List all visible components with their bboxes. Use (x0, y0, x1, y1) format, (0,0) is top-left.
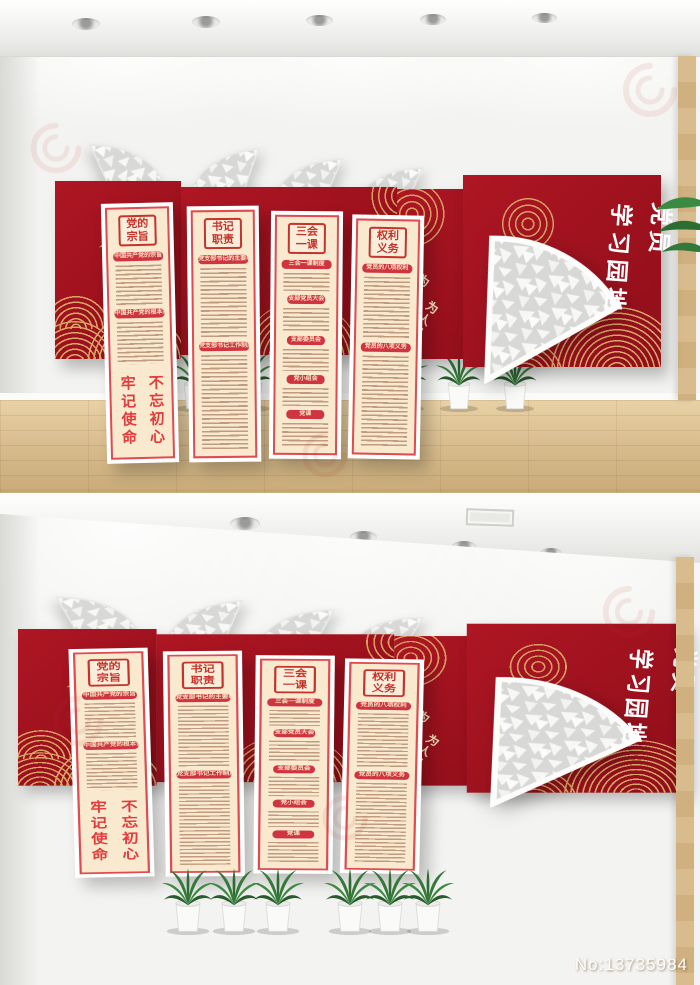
body-text-lines (282, 388, 328, 406)
section-title-bar: 党支部书记的主要职责 (198, 255, 248, 265)
section-title-bar: 支部党员大会 (287, 295, 326, 304)
watermark-icon (28, 120, 84, 176)
section-title-bar: 党员的八项权利 (362, 264, 412, 274)
scene-top-ceiling (0, 0, 700, 57)
section-title-bar: 党课 (286, 410, 325, 419)
ceiling-light (192, 16, 220, 28)
section-title-bar: 党支部书记工作制度 (176, 771, 231, 779)
seal-text: 书记 (184, 664, 222, 675)
body-text-lines (178, 706, 229, 768)
watermark-icon (320, 793, 370, 843)
body-text-lines (201, 355, 248, 449)
seal-text: 职责 (206, 233, 240, 246)
panel-seal: 党的 宗旨 (87, 659, 130, 687)
section-title-bar: 中国共产党的根本宗旨 (114, 309, 164, 319)
seal-text: 三会 (276, 668, 314, 679)
seal-text: 宗旨 (121, 230, 155, 243)
section-title-bar: 党支部书记工作制度 (199, 342, 249, 352)
scene-top-wall: 为人民谋幸福 为民族谋复兴 党员 学习园地 (0, 56, 700, 400)
body-text-lines (363, 277, 410, 340)
panel-seal: 党的 宗旨 (118, 215, 157, 247)
body-text-lines (86, 753, 138, 791)
wood-wall-strip (676, 557, 694, 985)
culture-panel-4: 权利 义务 党员的八项权利 党员的八项义务 (348, 214, 425, 459)
section-title-bar: 三会一课制度 (267, 699, 322, 707)
body-text-lines (283, 349, 329, 371)
panel-seal: 书记 职责 (204, 218, 242, 250)
wall-title-line: 学习园地 (599, 203, 641, 317)
main-slogan: 不忘初心 牢记使命 (84, 791, 143, 868)
side-plant-leaves (654, 180, 700, 270)
potted-plant (248, 861, 308, 935)
watermark-icon (620, 60, 680, 120)
section-title-bar: 支部委员会 (273, 765, 315, 773)
body-text-lines (283, 308, 329, 332)
body-text-lines (283, 273, 329, 291)
ceiling-light (306, 15, 333, 26)
seal-text: 一课 (290, 238, 324, 251)
seal-text: 党的 (90, 661, 128, 673)
potted-plant (398, 861, 458, 935)
panel-seal: 三会 一课 (274, 666, 316, 694)
main-slogan-column: 不忘初心 (145, 375, 168, 447)
stock-image-number: No:13735984 (575, 955, 688, 975)
seal-text: 义务 (365, 683, 403, 695)
ceiling-light (532, 13, 557, 23)
main-slogan: 不忘初心 牢记使命 (115, 366, 169, 453)
body-text-lines (361, 356, 409, 447)
ceiling-light (230, 517, 260, 530)
culture-panel-2: 书记 职责 党支部书记的主要职责 党支部书记工作制度 (163, 651, 245, 877)
body-text-lines (268, 842, 319, 862)
watermark-icon (300, 430, 350, 480)
seal-text: 权利 (371, 230, 405, 243)
big-lattice-fan-icon (446, 647, 646, 809)
watermark-icon (50, 693, 106, 749)
seal-text: 宗旨 (90, 672, 128, 684)
ceiling-vent (466, 508, 515, 527)
seal-text: 书记 (206, 221, 240, 234)
ceiling-light (72, 18, 100, 30)
main-slogan-column: 牢记使命 (117, 375, 140, 447)
culture-panel-2: 书记 职责 党支部书记的主要职责 党支部书记工作制度 (187, 206, 262, 463)
section-title-bar: 党小组会 (286, 375, 325, 384)
section-title-bar: 党支部书记的主要职责 (175, 694, 230, 702)
section-title-bar: 三会一课制度 (282, 260, 332, 269)
main-slogan-column: 不忘初心 (116, 799, 141, 863)
section-title-bar: 党课 (272, 831, 314, 839)
seal-text: 职责 (184, 675, 222, 686)
body-text-lines (115, 265, 162, 306)
scene-top-view: 为人民谋幸福 为民族谋复兴 党员 学习园地 (0, 0, 700, 493)
section-title-bar: 支部党员大会 (273, 729, 315, 737)
body-text-lines (357, 713, 409, 768)
panel-seal: 三会 一课 (288, 223, 326, 255)
panel-seal: 权利 义务 (363, 669, 405, 697)
wall-corner-shade (0, 56, 40, 400)
big-lattice-fan-icon (444, 202, 626, 386)
wall-title-line: 学习园地 (616, 648, 662, 748)
seal-text: 三会 (290, 226, 324, 239)
section-title-bar: 党小组会 (272, 800, 314, 808)
watermark-icon (600, 583, 658, 641)
panel-seal: 权利 义务 (369, 227, 408, 259)
body-text-lines (269, 710, 320, 726)
seal-text: 党的 (120, 218, 154, 231)
culture-panel-1: 党的 宗旨 中国共产党的宗旨 中国共产党的根本宗旨 不忘初心 牢记使命 (101, 202, 179, 464)
seal-text: 权利 (365, 672, 403, 684)
section-title-bar: 党员的八项权利 (356, 702, 411, 711)
body-text-lines (117, 322, 164, 365)
body-text-lines (268, 811, 319, 827)
body-text-lines (200, 268, 247, 338)
ceiling-light (420, 14, 446, 25)
section-title-bar: 党员的八项义务 (361, 343, 411, 353)
section-title-bar: 中国共产党的宗旨 (113, 252, 163, 262)
body-text-lines (179, 782, 231, 865)
section-title-bar: 支部委员会 (287, 336, 326, 345)
body-text-lines (268, 777, 319, 797)
panel-seal: 书记 职责 (182, 661, 224, 689)
scene-bottom-view: 为人民谋幸福 为民族谋复兴 党员 学习园地 (0, 493, 700, 985)
culture-panel-1: 党的 宗旨 中国共产党的宗旨 中国共产党的根本宗旨 不忘初心 牢记使命 (68, 648, 154, 878)
seal-text: 义务 (371, 242, 405, 255)
main-slogan-column: 牢记使命 (86, 800, 111, 864)
seal-text: 一课 (276, 680, 314, 691)
body-text-lines (269, 741, 320, 762)
culture-panel-3: 三会 一课 三会一课制度 支部党员大会 支部委员会 党小组会 党课 (269, 211, 343, 460)
section-title-bar: 党员的八项义务 (354, 771, 409, 780)
